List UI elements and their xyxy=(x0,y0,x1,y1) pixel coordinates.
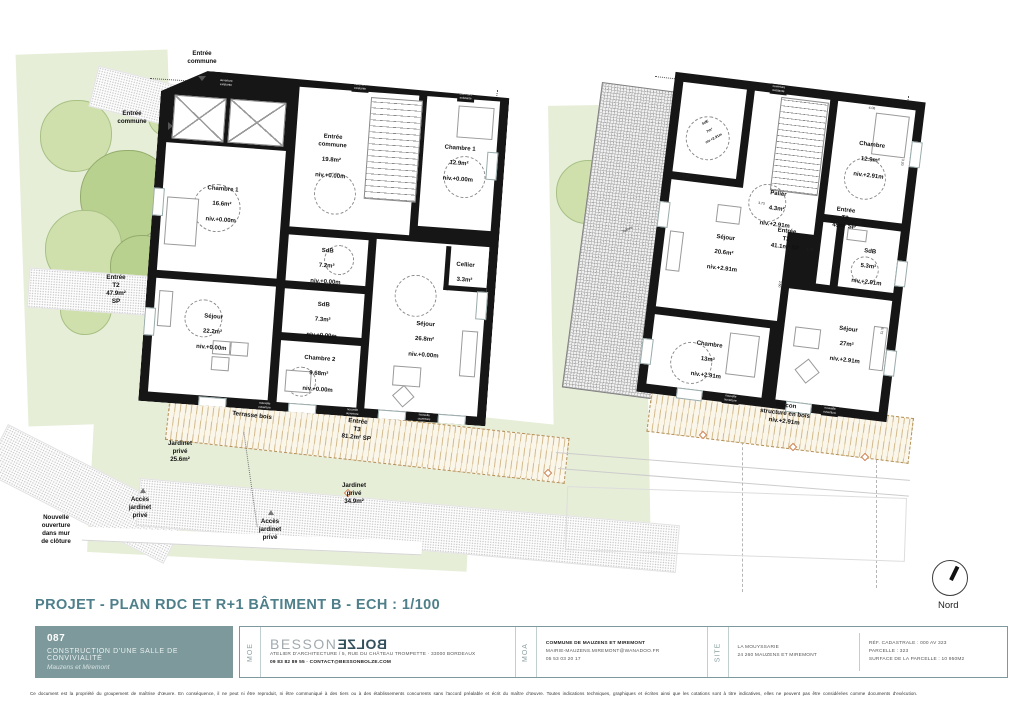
architect-logo: BESSONBOLZE xyxy=(270,637,506,651)
wall-opening-tag: ouverture existante xyxy=(217,78,234,89)
furniture-table xyxy=(716,204,742,225)
north-needle xyxy=(949,566,959,581)
room-label-cellier: Cellier 3.3m² xyxy=(441,253,489,295)
room-label-entree-commune: Entrée commune 19.8m² niv.+0.00m xyxy=(296,124,366,191)
storage-closet xyxy=(227,99,286,147)
moa-strip: MOA xyxy=(515,627,537,677)
room-label-sejour-right: Séjour 26.8m² niv.+0.00m xyxy=(378,310,472,371)
annotation-mur-ouverture: Nouvelle ouverture dans mur de clôture xyxy=(28,514,84,546)
wall-opening-tag: ouverture existante xyxy=(457,91,474,102)
site-section: LA MOUYSSARIE 24 260 MAUZENS ET MIREMONT xyxy=(729,627,859,677)
client-section: COMMUNE DE MAUZENS ET MIREMONT MAIRIE-MA… xyxy=(537,627,707,677)
dimension-label: 2.03 xyxy=(854,220,861,225)
annotation-entree-commune-left: Entrée commune xyxy=(100,110,164,126)
cadastre-surface: SURFACE DE LA PARCELLE : 10 950M2 xyxy=(869,656,998,664)
window-mark xyxy=(883,350,897,377)
window-mark xyxy=(909,141,923,168)
dimension-label: 1.92 xyxy=(683,174,690,179)
dimension-label: 6.72 xyxy=(879,327,884,334)
window-mark xyxy=(894,260,908,287)
dimension-label: 4.71 xyxy=(720,178,727,183)
wall-opening-tag: nouvelle ouverture xyxy=(415,412,432,423)
cadastre-section: RÉF. CADASTRALE : 000 AV 323 PARCELLE : … xyxy=(860,627,1007,677)
brand-bolze-mirrored: BOLZE xyxy=(337,637,387,651)
wall-opening-tag: ouverture existante xyxy=(770,84,788,95)
annotation-entree-t2: Entrée T2 47.9m² SP xyxy=(88,274,144,306)
room-label-chambre-129: Chambre 12.9m² niv.+2.91m xyxy=(831,130,909,193)
room-label-chambre-13: Chambre 13m² niv.+2.91m xyxy=(662,329,754,394)
cadastre-parcel: PARCELLE : 323 xyxy=(869,648,998,656)
sheet-title: PROJET - PLAN RDC ET R+1 BÂTIMENT B - EC… xyxy=(35,597,440,613)
room-label-sdb-53: SdB 5.3m² niv.+2.91m xyxy=(838,238,898,299)
architect-contact: 09 83 82 89 55 · CONTACT@BESSONBOLZE.COM xyxy=(270,659,506,667)
window-mark xyxy=(152,187,165,216)
dimension-label: 1.21 xyxy=(807,247,814,252)
window-mark xyxy=(143,307,156,336)
project-number: 087 xyxy=(47,633,221,644)
north-arrow-icon xyxy=(932,560,968,596)
annotation-acces-b: Accès jardinet privé xyxy=(242,518,298,542)
room-label-chambre1-left: Chambre 1 16.6m² niv.+0.00m xyxy=(170,175,274,237)
room-label-sdb1: SdB 7.2m² niv.+0.00m xyxy=(289,238,365,298)
north-label: Nord xyxy=(938,600,959,611)
dimension-label: 4.06 xyxy=(868,106,875,111)
client-name: COMMUNE DE MAUZENS ET MIREMONT xyxy=(546,640,698,648)
brand-besson: BESSON xyxy=(270,636,337,652)
room-label-chambre2: Chambre 2 9.68m² niv.+0.00m xyxy=(281,345,357,405)
project-title: CONSTRUCTION D'UNE SALLE DE CONVIVIALITÉ xyxy=(47,648,221,662)
room-label-sdb2: SdB 7.3m² niv.+0.00m xyxy=(285,292,361,352)
window-mark xyxy=(475,291,488,320)
storage-closet xyxy=(172,95,227,143)
dimension-label: 3.73 xyxy=(758,201,765,206)
drawing-sheet: ouverture existante ouverture existante … xyxy=(0,0,1024,724)
building-rdc: ouverture existante ouverture existante … xyxy=(138,68,510,427)
site-name: LA MOUYSSARIE xyxy=(738,644,850,652)
room-label-sejour-27: Séjour 27m² niv.+2.91m xyxy=(808,315,884,378)
site-strip: SITE xyxy=(707,627,729,677)
furniture-table xyxy=(392,365,421,387)
wall-opening-tag: nouvelle ouverture xyxy=(256,400,273,411)
annotation-entree-commune-top: Entrée commune xyxy=(170,50,234,66)
entrance-arrow-icon xyxy=(198,76,206,81)
building-r1: ouverture existante nouvelle ouverture n… xyxy=(636,72,925,422)
dimension-label: 3.20 xyxy=(900,159,905,166)
moe-strip: MOE xyxy=(240,627,261,677)
annotation-jardinet-b: Jardinet privé 34.9m² xyxy=(322,482,386,506)
project-id-panel: 087 CONSTRUCTION D'UNE SALLE DE CONVIVIA… xyxy=(35,626,233,678)
client-email: MAIRIE-MAUZENS.MIREMONT@WANADOO.FR xyxy=(546,648,698,656)
site-address: 24 260 MAUZENS ET MIREMONT xyxy=(738,652,850,660)
title-block: MOE BESSONBOLZE ATELIER D'ARCHITECTURE /… xyxy=(239,626,1008,678)
cadastre-ref: RÉF. CADASTRALE : 000 AV 323 xyxy=(869,640,998,648)
client-phone: 05 53 03 20 17 xyxy=(546,656,698,664)
entrance-arrow-icon xyxy=(168,122,173,130)
annotation-jardinet-a: Jardinet privé 25.6m² xyxy=(148,440,212,464)
acces-arrow-icon xyxy=(140,488,146,493)
dimension-label: 2.60 xyxy=(777,281,782,288)
architect-section: BESSONBOLZE ATELIER D'ARCHITECTURE / 5, … xyxy=(261,627,515,677)
room-corridor xyxy=(816,222,837,285)
parcel-outline xyxy=(565,486,907,562)
staircase xyxy=(364,97,423,203)
wall-opening-tag: ouverture existante xyxy=(351,82,368,93)
legal-disclaimer: Ce document est la propriété du groupeme… xyxy=(30,691,994,696)
annotation-toiture: Toiture xyxy=(622,225,633,234)
architect-address: ATELIER D'ARCHITECTURE / 5, RUE DU CHÂTE… xyxy=(270,651,506,659)
room-label-chambre1-right: Chambre 1 12.9m² niv.+0.00m xyxy=(420,135,497,195)
room-label-sejour-left: Séjour 22.2m² niv.+0.00m xyxy=(161,302,265,364)
project-subtitle: Mauzens et Miremont xyxy=(47,664,221,671)
furniture-bed xyxy=(456,105,494,140)
acces-arrow-icon xyxy=(268,510,274,515)
annotation-acces-a: Accès jardinet privé xyxy=(112,496,168,520)
